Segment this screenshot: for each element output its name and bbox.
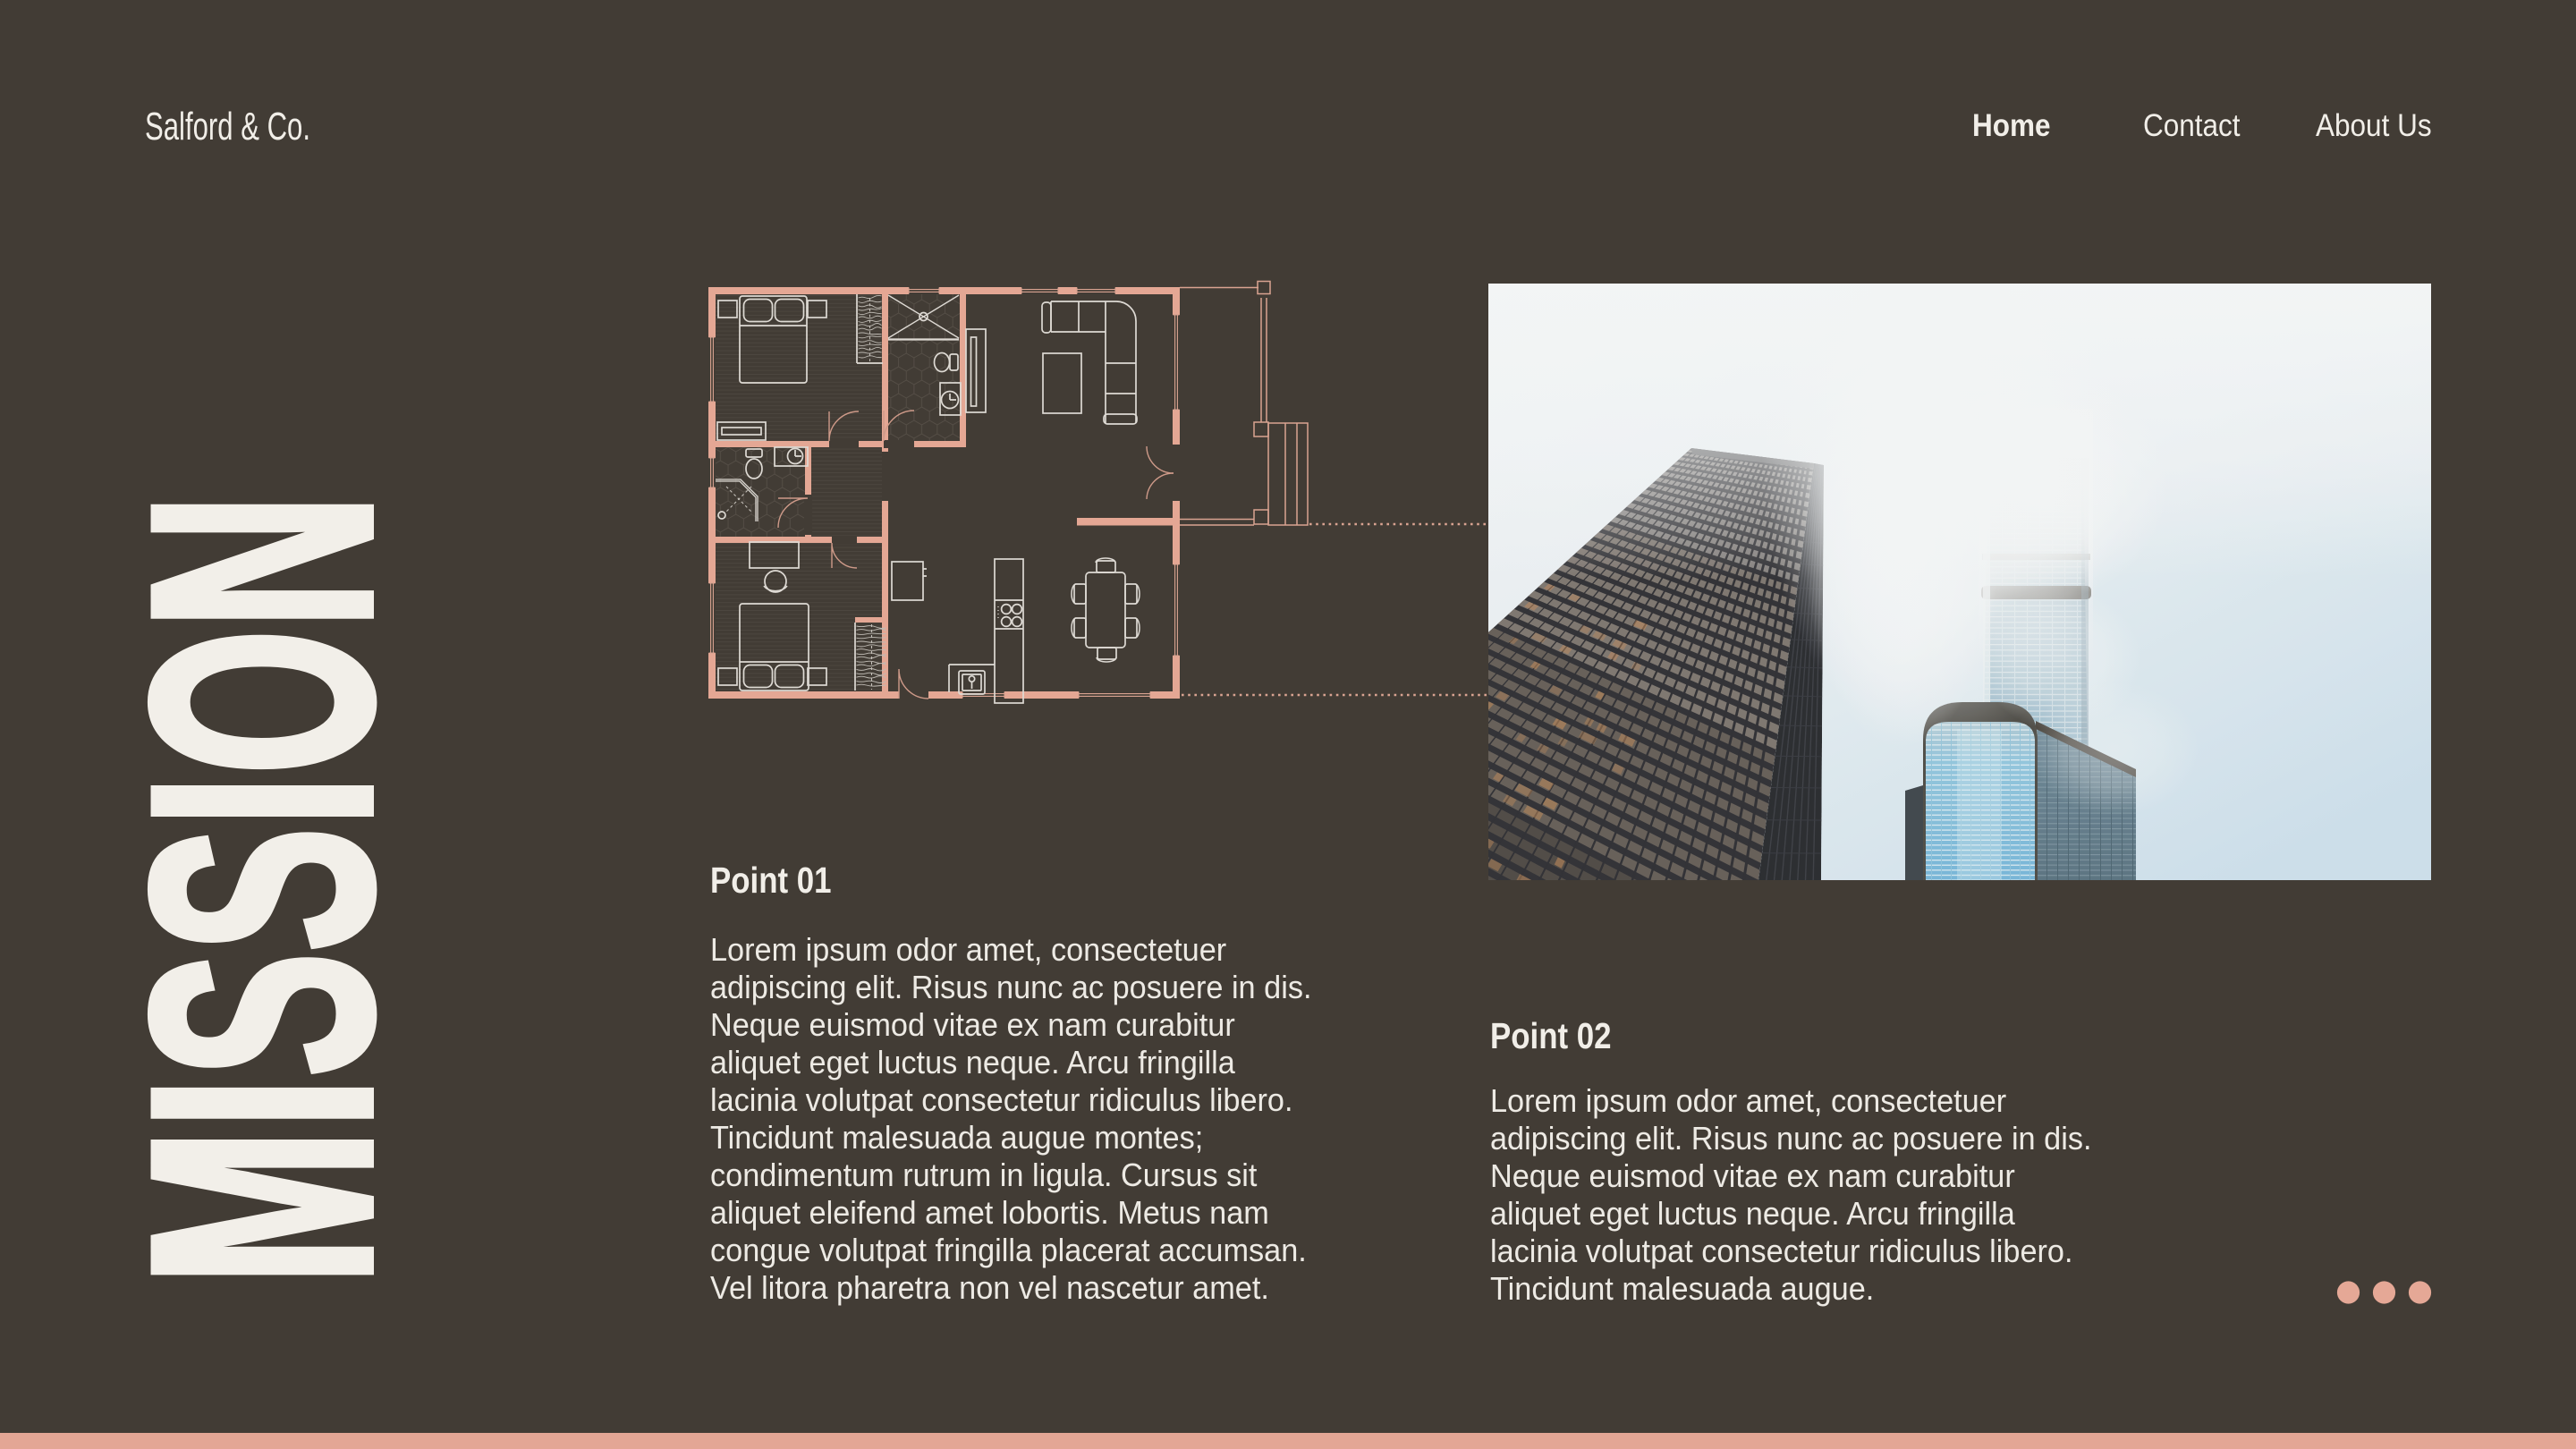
svg-text:MISSION: MISSION [87,494,437,1285]
